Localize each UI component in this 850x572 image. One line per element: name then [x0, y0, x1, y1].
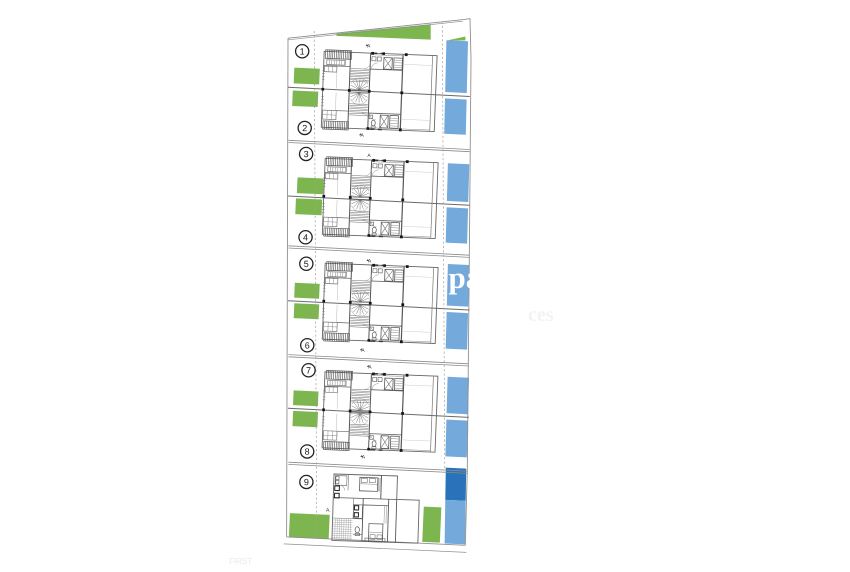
svg-text:8: 8 [305, 447, 310, 457]
svg-text:5: 5 [304, 259, 309, 269]
svg-text:4: 4 [303, 232, 308, 242]
svg-text:1: 1 [300, 46, 305, 56]
svg-text:2: 2 [302, 123, 307, 133]
svg-text:9: 9 [304, 477, 309, 487]
svg-text:A.: A. [326, 507, 331, 513]
svg-text:ces: ces [528, 304, 554, 326]
svg-text:FIRST: FIRST [229, 557, 252, 566]
svg-text:6: 6 [305, 340, 310, 350]
svg-text:pa: pa [449, 260, 482, 295]
svg-text:7: 7 [306, 365, 311, 375]
svg-text:3: 3 [304, 149, 309, 159]
